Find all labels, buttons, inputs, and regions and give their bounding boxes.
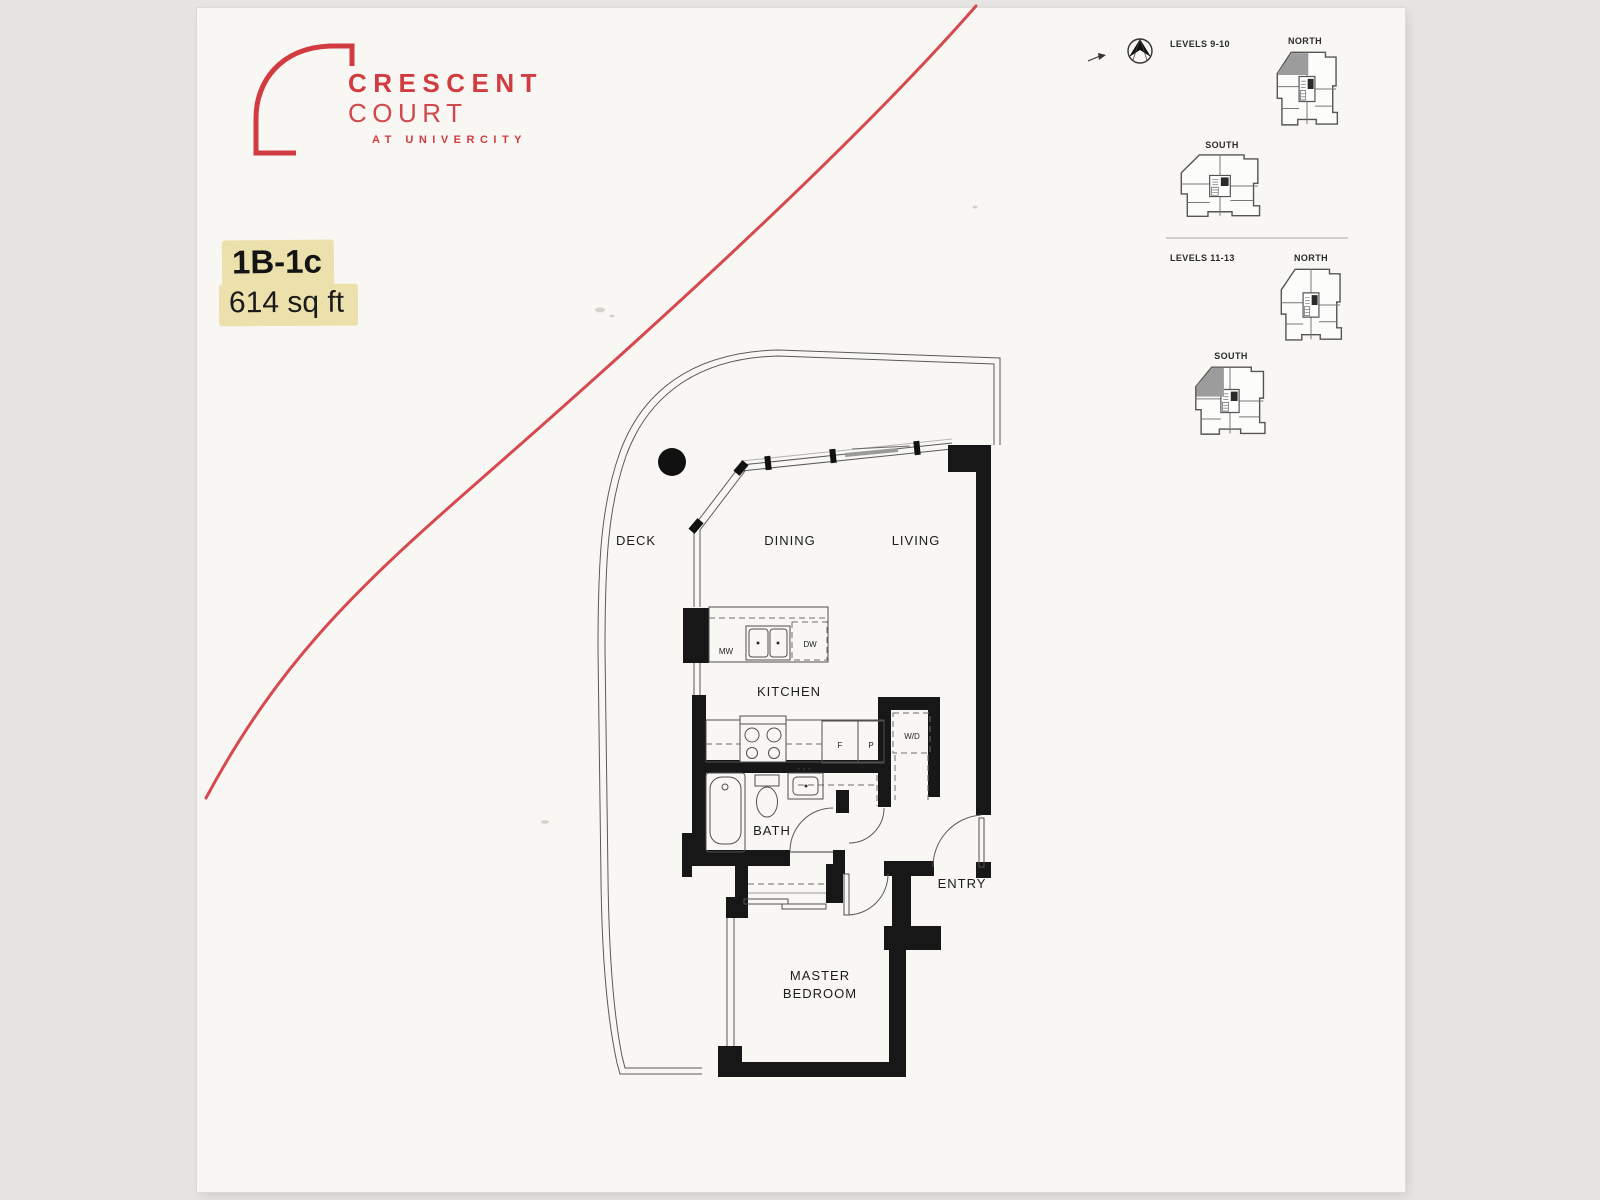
unit-code-highlighted: 1B-1c <box>222 239 334 287</box>
key-plan-south-11-13 <box>1196 367 1265 434</box>
bathroom <box>706 768 823 852</box>
window-mullion <box>688 518 703 534</box>
key-plan-north-11-13 <box>1281 269 1341 340</box>
room-label-bedroom: BEDROOM <box>783 986 857 1001</box>
bathtub <box>706 773 745 852</box>
key-plan-north-9-10 <box>1277 52 1337 125</box>
unit-area-highlighted: 614 sq ft <box>219 284 358 327</box>
bath-door <box>790 808 833 852</box>
scanned-floor-plan-page: LEVELS 9-10 NORTH SOUTH LEVELS 11-13 NOR… <box>0 0 1600 1200</box>
label-pantry: P <box>868 741 873 750</box>
highlighted-unit <box>1278 53 1308 75</box>
laundry-door <box>849 808 884 843</box>
label-fridge: F <box>838 741 843 750</box>
label-washer-dryer: W/D <box>904 732 920 741</box>
stove <box>740 716 786 762</box>
key-plan-north-label-11-13: NORTH <box>1294 253 1328 263</box>
bedroom-closet <box>744 884 826 909</box>
room-label-kitchen: KITCHEN <box>757 684 821 699</box>
entry-door <box>933 815 984 867</box>
brand-logo: CRESCENT COURT AT UNIVERCITY <box>252 42 582 162</box>
label-dishwasher: DW <box>803 640 817 649</box>
key-plan-north-label-9-10: NORTH <box>1288 36 1322 46</box>
crescent-glyph-icon <box>252 42 362 160</box>
key-plan-south-9-10 <box>1181 155 1259 216</box>
brand-tagline: AT UNIVERCITY <box>372 134 527 146</box>
floor-plan-drawing: LEVELS 9-10 NORTH SOUTH LEVELS 11-13 NOR… <box>0 0 1600 1200</box>
key-plan-south-label-11-13: SOUTH <box>1214 351 1248 361</box>
label-microwave: MW <box>719 647 734 656</box>
brand-name: CRESCENT <box>348 68 543 99</box>
toilet <box>755 775 779 817</box>
laundry-closet <box>893 713 930 800</box>
room-label-deck: DECK <box>616 533 656 548</box>
room-label-living: LIVING <box>892 533 941 548</box>
brand-name-sub: COURT <box>348 98 467 129</box>
highlighted-unit <box>1197 368 1224 397</box>
room-label-bath: BATH <box>753 823 791 838</box>
window-wall <box>688 439 952 697</box>
key-plan-level-label-11-13: LEVELS 11-13 <box>1170 253 1235 263</box>
column <box>658 448 686 476</box>
north-compass-icon <box>1088 39 1152 63</box>
room-label-master: MASTER <box>790 968 850 983</box>
window-mullion <box>733 460 748 476</box>
vanity-sink <box>788 768 823 799</box>
bedroom-door <box>844 874 888 915</box>
bedroom-window <box>727 918 734 1046</box>
room-label-entry: ENTRY <box>938 876 987 891</box>
key-plan-level-label-9-10: LEVELS 9-10 <box>1170 39 1230 49</box>
key-plan-south-label-9-10: SOUTH <box>1205 140 1239 150</box>
room-label-dining: DINING <box>764 533 816 548</box>
